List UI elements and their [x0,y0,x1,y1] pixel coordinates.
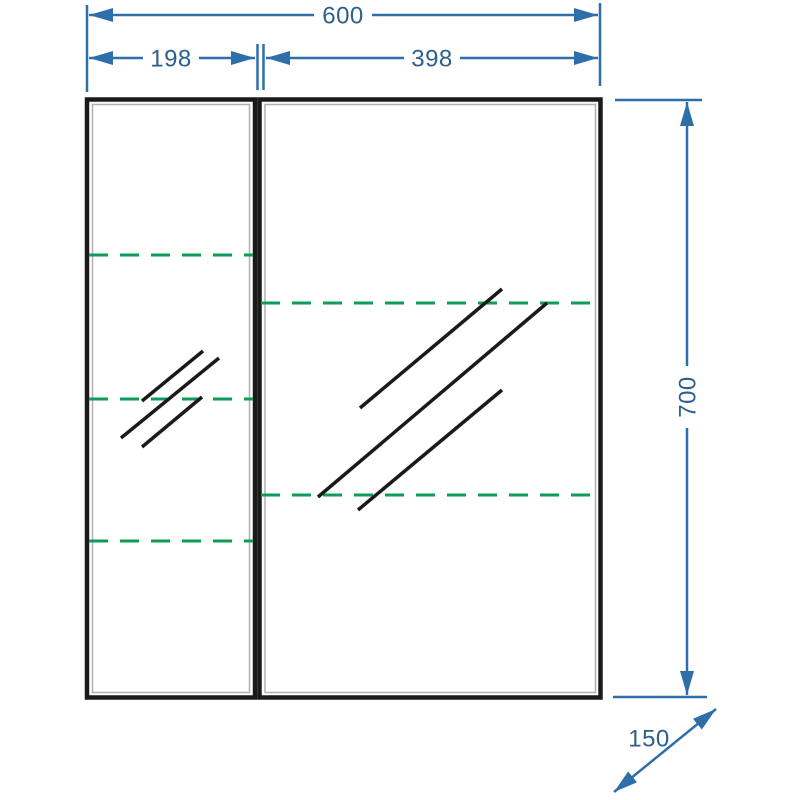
right-door-glint-3 [358,390,502,510]
left-width-label: 198 [150,46,192,73]
right-door-inner-edge [265,105,596,693]
right-door-glint-2 [318,303,547,497]
dimension-labels: 600 198 398 700 150 [150,3,701,753]
left-door-glint-3 [142,397,202,447]
cabinet-right-door-outline [260,100,601,698]
right-door-glint-1 [360,289,502,408]
height-label: 700 [675,376,702,418]
depth-label: 150 [628,726,670,753]
right-width-label: 398 [411,46,453,73]
dimension-lines [87,3,716,792]
left-door-glint-1 [142,351,203,401]
cabinet-dimension-drawing: 600 198 398 700 150 [0,0,800,800]
cabinet-dimension-diagram: 600 198 398 700 150 [0,0,800,800]
total-width-label: 600 [322,3,364,30]
shelf-lines [89,255,599,541]
